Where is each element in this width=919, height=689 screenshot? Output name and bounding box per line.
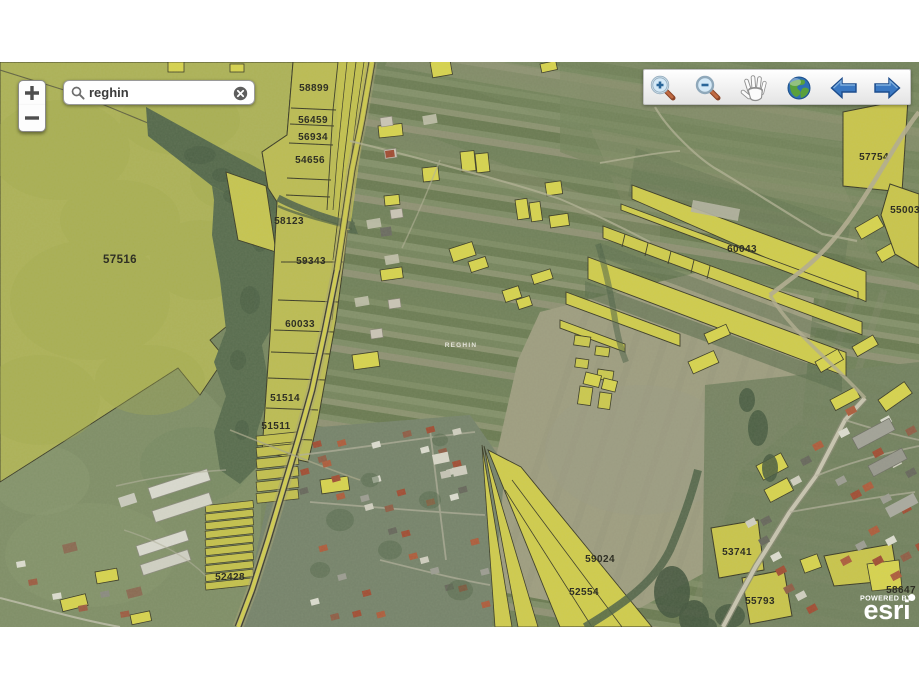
svg-text:esri: esri: [864, 595, 911, 625]
